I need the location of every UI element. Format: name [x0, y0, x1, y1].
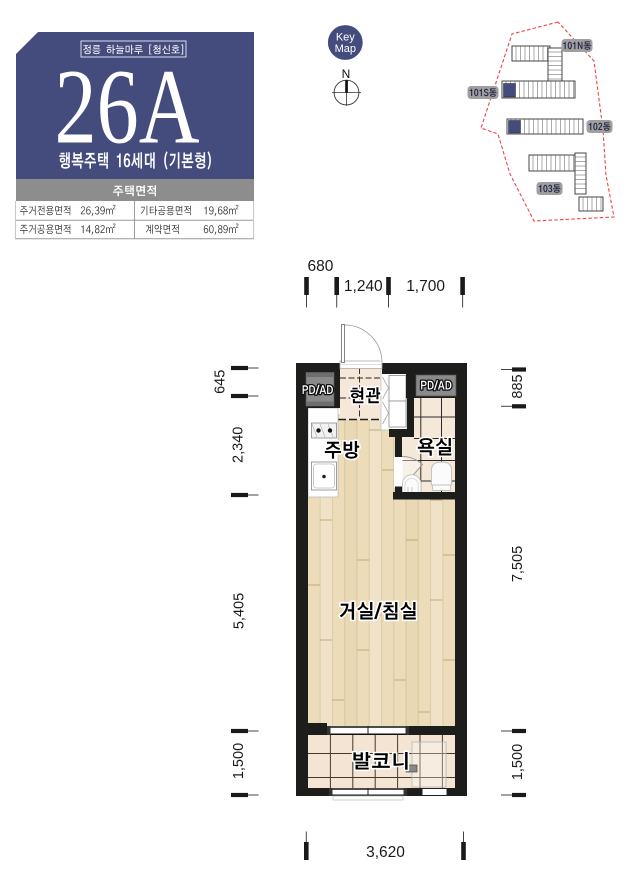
svg-text:5,405: 5,405	[232, 593, 248, 629]
svg-text:26A: 26A	[55, 49, 200, 167]
svg-text:885: 885	[510, 374, 526, 398]
svg-text:7,505: 7,505	[510, 546, 526, 582]
svg-text:2,340: 2,340	[230, 427, 246, 463]
svg-text:1,500: 1,500	[510, 744, 526, 780]
svg-text:Key: Key	[336, 32, 355, 44]
svg-text:1,700: 1,700	[406, 278, 445, 295]
svg-text:1,500: 1,500	[231, 743, 247, 779]
svg-text:3,620: 3,620	[366, 844, 405, 861]
svg-text:680: 680	[307, 258, 333, 275]
svg-text:1,240: 1,240	[344, 278, 383, 295]
svg-text:Map: Map	[335, 43, 356, 55]
svg-text:645: 645	[212, 370, 228, 394]
svg-text:N: N	[342, 67, 351, 81]
